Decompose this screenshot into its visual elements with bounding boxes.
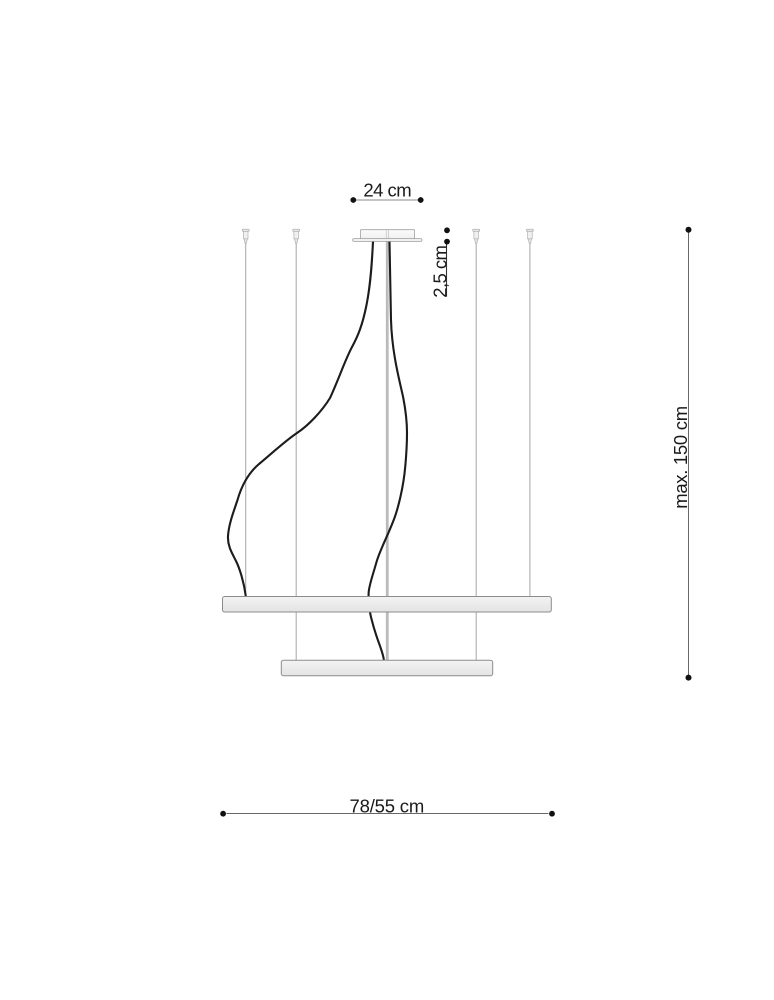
svg-text:max. 150 cm: max. 150 cm [670,406,691,509]
svg-text:78/55 cm: 78/55 cm [350,795,425,816]
svg-text:2,5 cm: 2,5 cm [430,245,451,297]
svg-text:24 cm: 24 cm [363,180,411,201]
